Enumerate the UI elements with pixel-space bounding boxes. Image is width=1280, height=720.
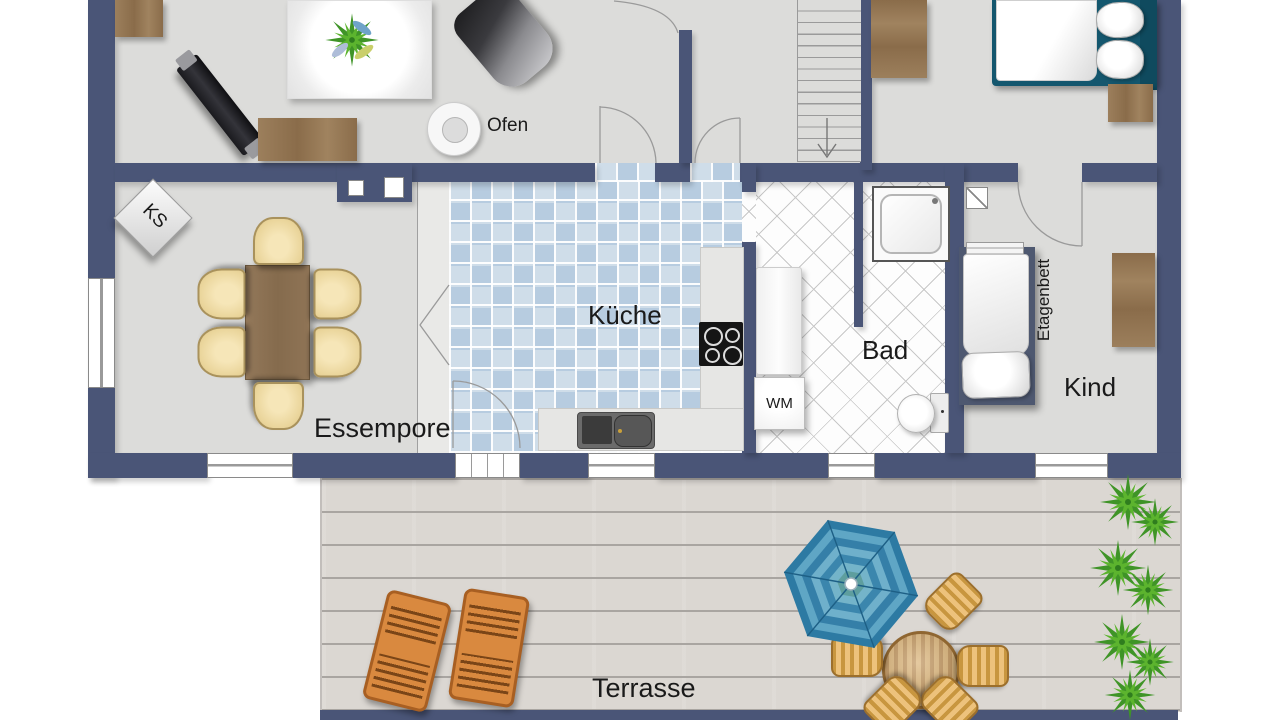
room-label-bad: Bad [862, 335, 908, 366]
floorplan: Ofen KS WM [0, 0, 1280, 720]
chimney-vent-large [384, 177, 404, 198]
window-essempore-west [88, 278, 115, 388]
wall-hall-left [679, 30, 692, 163]
room-label-kueche: Küche [588, 300, 662, 331]
wall-bottom-5 [875, 453, 1035, 478]
wall-bottom-1 [88, 453, 207, 478]
wall-right [1157, 0, 1181, 453]
wall-bottom-4 [655, 453, 828, 478]
living-coffee-table [258, 118, 357, 161]
terrace-chair-w [831, 635, 883, 677]
burner-1 [704, 327, 723, 346]
wall-mid-2 [655, 163, 690, 182]
wm-label: WM [766, 395, 793, 412]
bedroom-wardrobe [871, 0, 927, 78]
wall-mid-3 [740, 163, 1018, 182]
wall-bottom-2 [293, 453, 455, 478]
shaft-icon [966, 187, 988, 209]
window-bath-south [828, 453, 875, 478]
bath-vanity [756, 267, 802, 375]
wall-mid-4 [1082, 163, 1157, 182]
sink-drainboard [582, 416, 612, 444]
wall-bottom-3 [520, 453, 588, 478]
wall-left [88, 0, 115, 478]
dining-chair-left-2 [198, 327, 246, 378]
terrace-edge [320, 710, 1178, 720]
bed-duvet [996, 0, 1097, 81]
terrace-chair-e [957, 645, 1009, 687]
bath-door-opening [742, 192, 756, 242]
hall-door-opening [679, 0, 692, 30]
room-label-kind: Kind [1064, 372, 1116, 403]
ofen-icon-inner [442, 117, 468, 143]
wall-kitchen-bath-stub [742, 163, 756, 192]
bedroom-door-opening [1018, 163, 1082, 182]
wall-bath-partition [854, 182, 863, 327]
wall-bottom-6 [1108, 453, 1181, 478]
kitchen-door-opening-hall [690, 163, 740, 182]
dining-chair-bottom [253, 382, 304, 430]
window-kitchen-south [588, 453, 655, 478]
chimney-vent-small [348, 180, 364, 196]
toilet-bowl [897, 394, 935, 433]
bunk-bed-pillow [961, 351, 1031, 399]
shower [872, 186, 950, 262]
dining-chair-left-1 [198, 269, 246, 320]
ofen-label: Ofen [487, 115, 528, 137]
window-kind-south [1035, 453, 1108, 478]
bed-pillow-1 [1095, 1, 1145, 39]
double-bed [992, 0, 1157, 86]
kitchen-door-opening-living [595, 163, 655, 182]
terrace-deck [320, 478, 1182, 712]
dining-chair-right-2 [314, 327, 362, 378]
toilet-button [941, 410, 944, 413]
washing-machine: WM [754, 377, 805, 430]
bed-pillow-2 [1095, 39, 1144, 80]
staircase [797, 0, 861, 162]
sink-tap-dot [618, 429, 622, 433]
shower-drain [932, 198, 938, 204]
kitchen-sink [577, 412, 655, 449]
kind-desk [1112, 253, 1155, 347]
living-cabinet [115, 0, 163, 37]
bunk-bed-mattress [963, 254, 1029, 356]
burner-2 [725, 328, 740, 343]
window-essempore-south [207, 453, 293, 478]
bedroom-nightstand [1108, 84, 1153, 122]
burner-4 [723, 346, 742, 365]
ofen-icon [427, 102, 481, 156]
room-label-essempore: Essempore [314, 413, 451, 444]
burner-3 [705, 348, 720, 363]
cooktop [699, 322, 743, 366]
room-label-terrasse: Terrasse [592, 673, 696, 704]
ks-label: KS [128, 190, 182, 244]
living-table [287, 0, 432, 99]
terrace-door-window [455, 453, 520, 478]
dining-table [245, 265, 310, 380]
dining-chair-right-1 [314, 269, 362, 320]
dining-chair-top [253, 217, 304, 265]
etagenbett-label: Etagenbett [1034, 250, 1054, 350]
